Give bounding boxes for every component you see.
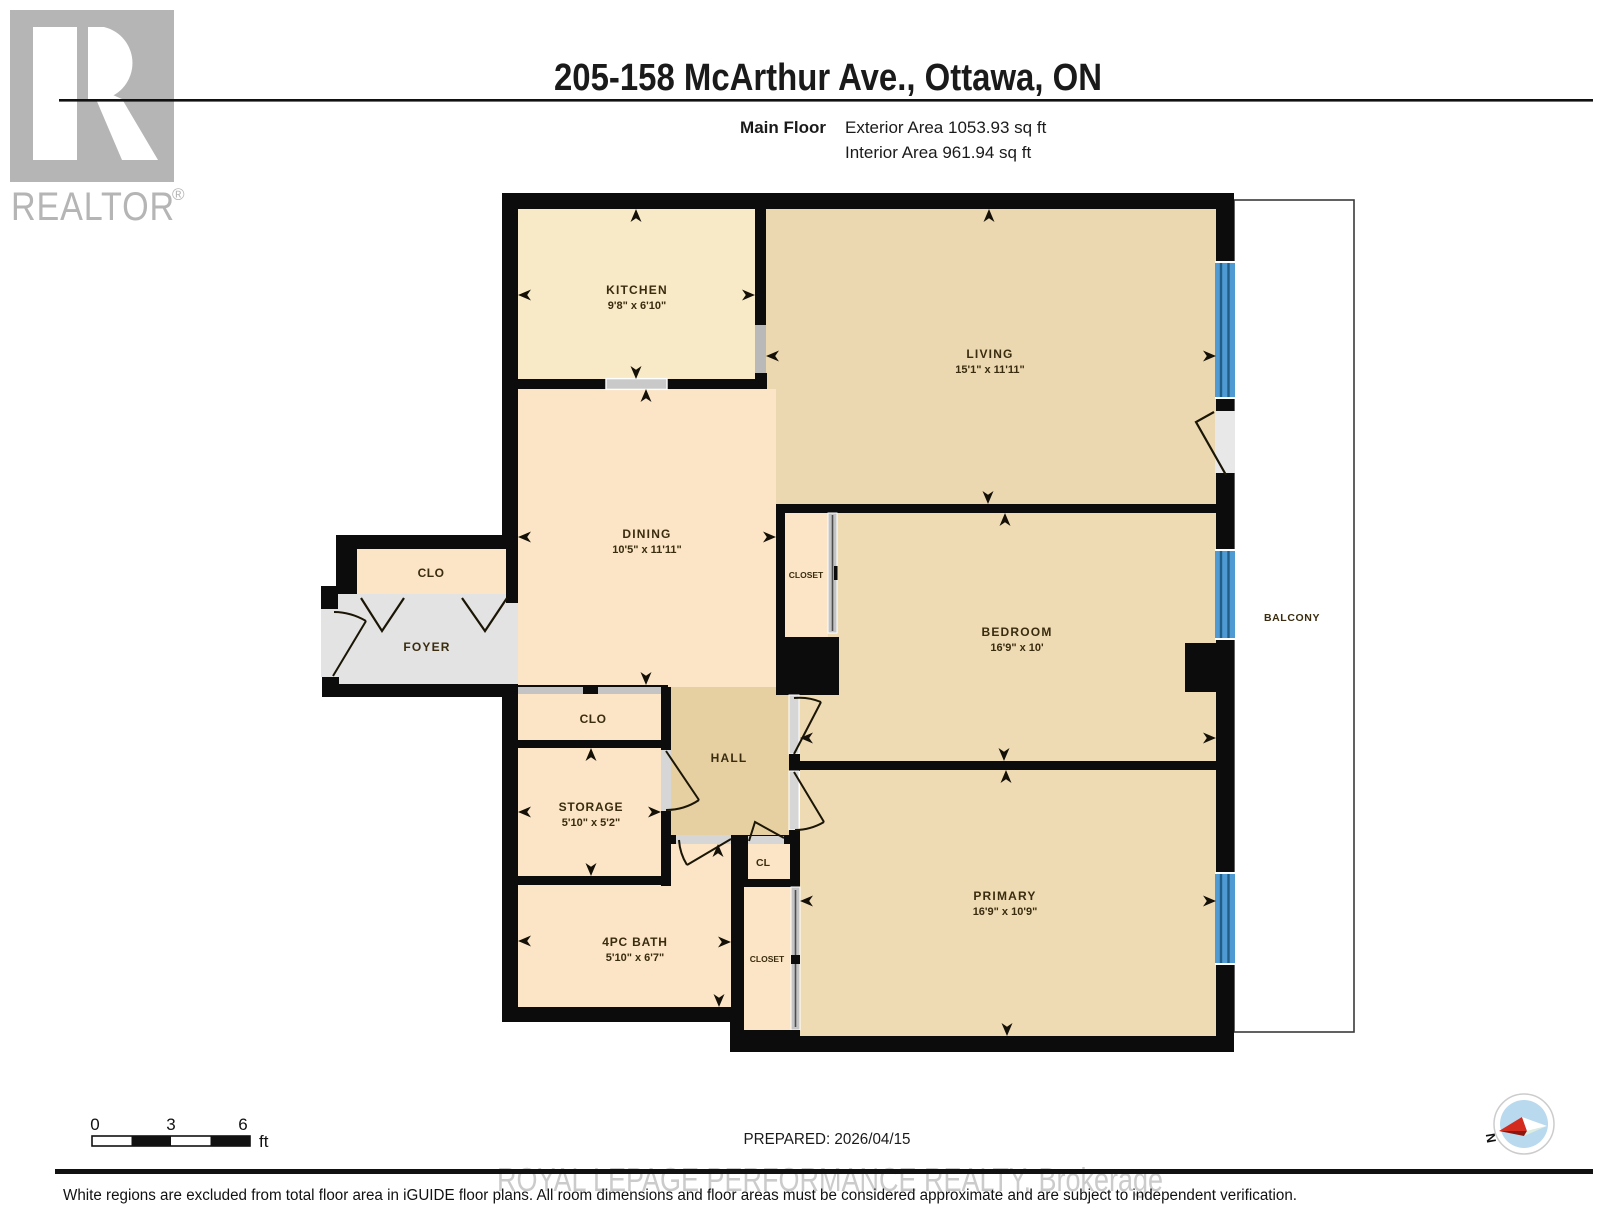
svg-text:®: ® [172, 185, 185, 204]
svg-text:DINING: DINING [622, 527, 671, 541]
svg-text:CLO: CLO [418, 566, 445, 580]
svg-text:FOYER: FOYER [403, 640, 450, 654]
svg-text:PREPARED: 2026/04/15: PREPARED: 2026/04/15 [744, 1131, 911, 1148]
svg-text:Interior Area 961.94 sq ft: Interior Area 961.94 sq ft [845, 143, 1031, 162]
svg-text:Exterior Area 1053.93 sq ft: Exterior Area 1053.93 sq ft [845, 118, 1047, 137]
svg-text:5'10" x 5'2": 5'10" x 5'2" [562, 817, 620, 829]
svg-text:CL: CL [756, 857, 771, 869]
svg-text:PRIMARY: PRIMARY [973, 889, 1036, 903]
svg-text:CLO: CLO [580, 712, 607, 726]
svg-text:Main Floor: Main Floor [740, 118, 826, 137]
svg-text:4PC BATH: 4PC BATH [602, 935, 668, 949]
svg-text:LIVING: LIVING [966, 347, 1013, 361]
svg-text:5'10" x 6'7": 5'10" x 6'7" [606, 952, 664, 964]
svg-text:205-158 McArthur Ave., Ottawa,: 205-158 McArthur Ave., Ottawa, ON [554, 57, 1102, 99]
svg-text:0: 0 [90, 1115, 99, 1134]
svg-text:15'1" x 11'11": 15'1" x 11'11" [955, 364, 1025, 376]
svg-text:REALTOR: REALTOR [11, 185, 175, 229]
svg-text:KITCHEN: KITCHEN [606, 283, 668, 297]
svg-text:ft: ft [259, 1132, 269, 1151]
svg-text:10'5" x 11'11": 10'5" x 11'11" [612, 544, 682, 556]
svg-text:16'9" x 10'9": 16'9" x 10'9" [973, 906, 1038, 918]
svg-text:HALL: HALL [711, 751, 748, 765]
svg-text:6: 6 [238, 1115, 247, 1134]
svg-text:9'8" x 6'10": 9'8" x 6'10" [608, 300, 666, 312]
svg-text:CLOSET: CLOSET [789, 570, 824, 580]
svg-text:CLOSET: CLOSET [750, 954, 785, 964]
svg-text:16'9" x 10': 16'9" x 10' [990, 642, 1044, 654]
svg-text:BALCONY: BALCONY [1264, 612, 1320, 624]
svg-text:White regions are excluded fro: White regions are excluded from total fl… [63, 1187, 1297, 1204]
svg-text:3: 3 [166, 1115, 175, 1134]
svg-text:STORAGE: STORAGE [559, 800, 624, 814]
svg-text:BEDROOM: BEDROOM [981, 625, 1052, 639]
